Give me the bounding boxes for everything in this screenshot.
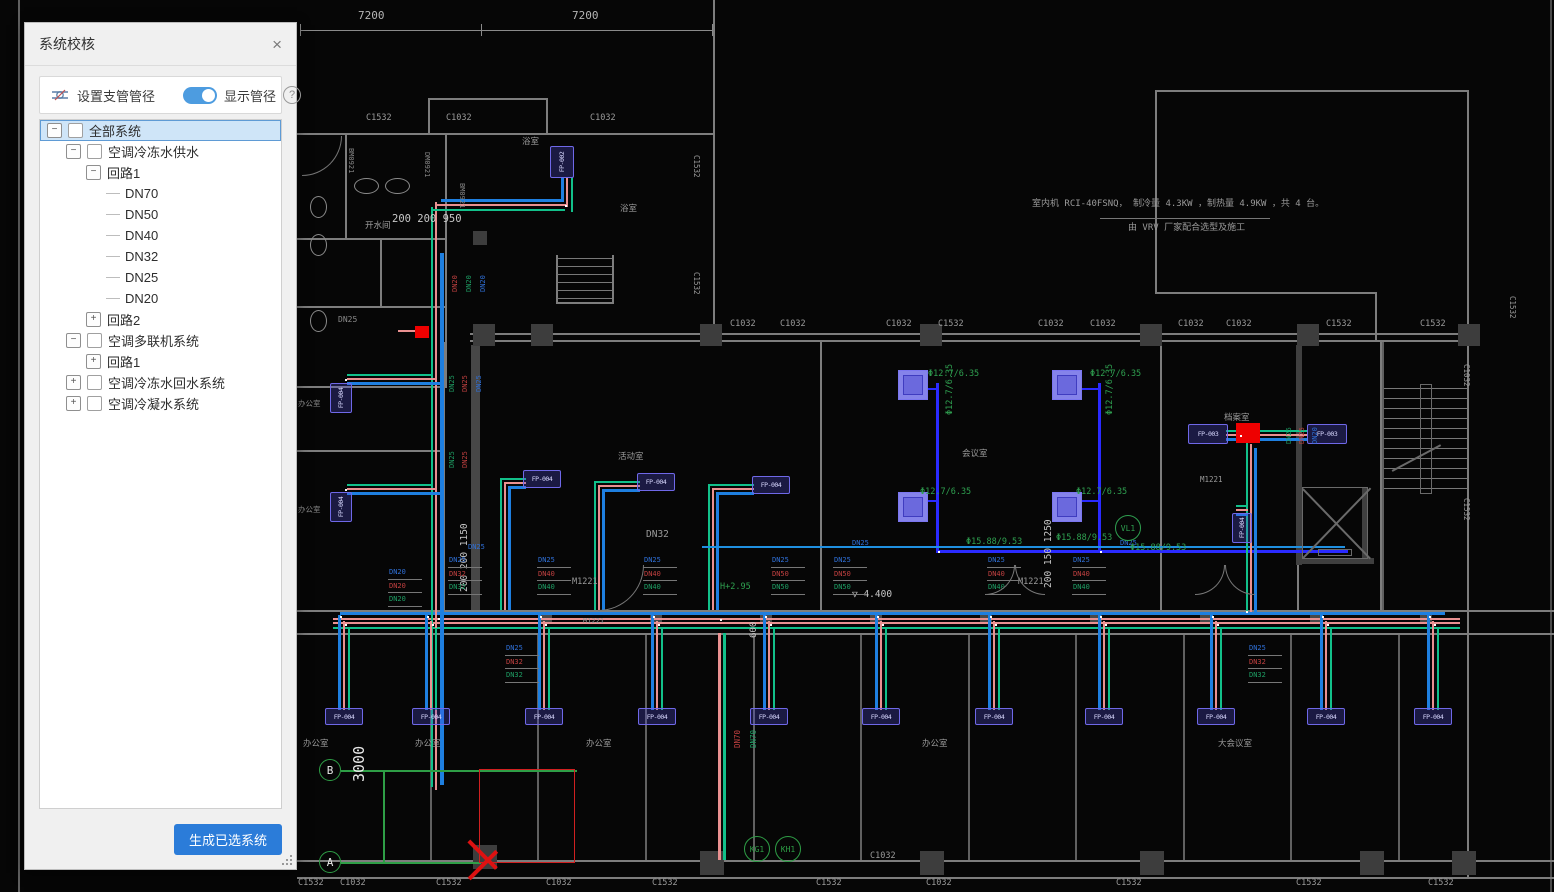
stair-tread	[557, 258, 612, 259]
fan-coil-label: FP-003	[1198, 430, 1218, 438]
wall-line	[428, 98, 430, 135]
wall-line	[1075, 635, 1077, 860]
fan-coil-unit[interactable]: FP-004	[330, 492, 352, 522]
pipe-segment[interactable]	[430, 621, 432, 710]
dn-label: DN40	[643, 581, 677, 595]
pipe-segment[interactable]	[566, 177, 568, 207]
column	[1360, 851, 1384, 875]
wall-line	[713, 0, 715, 341]
fan-coil-unit[interactable]: FP-004	[638, 708, 676, 725]
cad-label: 600	[750, 622, 759, 638]
fan-coil-unit[interactable]: FP-004	[637, 473, 675, 491]
wall-line	[556, 255, 558, 303]
junction-dot	[1322, 616, 1324, 618]
column	[1140, 851, 1164, 875]
tree-item-回路2[interactable]: +回路2	[40, 309, 281, 330]
tree-item-空调冷凝水系统[interactable]: +空调冷凝水系统	[40, 393, 281, 414]
pipe-segment[interactable]	[602, 489, 640, 492]
tree-item-回路1[interactable]: −回路1	[40, 162, 281, 183]
fan-coil-label: FP-004	[759, 713, 779, 721]
pipe-segment[interactable]	[347, 484, 433, 486]
dn-label: DN32	[448, 581, 482, 595]
wall-line	[1290, 635, 1292, 860]
cad-label: C1032	[1178, 320, 1204, 329]
tree-item-空调冷冻水回水系统[interactable]: +空调冷冻水回水系统	[40, 372, 281, 393]
tree-item-label: 回路2	[107, 310, 140, 329]
fan-coil-label: FP-004	[647, 713, 667, 721]
pipe-segment[interactable]	[1427, 615, 1430, 710]
junction-dot	[765, 616, 767, 618]
tree-item-label: 空调多联机系统	[108, 331, 199, 350]
pipe-segment[interactable]	[988, 615, 991, 710]
junction-dot	[427, 616, 429, 618]
fan-coil-label: FP-002	[558, 152, 566, 172]
expand-icon[interactable]: +	[66, 375, 81, 390]
pipe-segment[interactable]	[1432, 621, 1434, 710]
fan-coil-unit[interactable]: FP-004	[1085, 708, 1123, 725]
fan-coil-unit[interactable]: FP-004	[330, 383, 352, 413]
wall-line	[445, 133, 447, 388]
pipe-segment[interactable]	[773, 628, 775, 710]
pipe-segment[interactable]	[500, 478, 502, 610]
dn-label: DN50	[833, 568, 867, 582]
pipe-segment[interactable]	[1082, 500, 1100, 502]
cad-label: C1032	[446, 114, 472, 123]
fan-coil-label: FP-004	[984, 713, 1004, 721]
door-arc	[1195, 565, 1225, 595]
pipe-segment[interactable]	[763, 615, 766, 710]
junction-dot	[1240, 435, 1242, 437]
dn-label: DN25	[1248, 642, 1282, 656]
cad-label: 办公室	[298, 506, 321, 514]
pipe-segment[interactable]	[936, 383, 939, 553]
wall-line	[820, 342, 822, 610]
pipe-segment[interactable]	[718, 633, 721, 860]
pipe-segment[interactable]	[398, 330, 416, 332]
dn-label: DN40	[537, 581, 571, 595]
pipe-segment[interactable]	[435, 628, 437, 710]
tree-item-label: 空调冷凝水系统	[108, 394, 199, 413]
fan-coil-unit[interactable]: FP-002	[550, 146, 574, 178]
fan-coil-label: FP-004	[334, 713, 354, 721]
column	[1452, 851, 1476, 875]
wall-line	[546, 98, 548, 135]
fan-coil-label: FP-004	[1238, 518, 1246, 538]
pipe-segment[interactable]	[712, 488, 754, 490]
fan-coil-unit[interactable]: FP-004	[752, 476, 790, 494]
door-arc	[1225, 565, 1255, 595]
pipe-segment[interactable]	[993, 621, 995, 710]
dn-label: DN25	[1072, 554, 1106, 568]
pipe-segment[interactable]	[383, 772, 385, 864]
dn-label: DN25	[448, 554, 482, 568]
system-check-panel[interactable]: 系统校核 × 设置支管管径 显示管径 ? −全部系统−空调冷冻水供水−回路1DN…	[24, 22, 297, 870]
generate-selected-systems-button[interactable]: 生成已选系统	[174, 824, 282, 855]
pipe-segment[interactable]	[723, 633, 726, 860]
expand-icon[interactable]: +	[86, 354, 101, 369]
fan-coil-unit[interactable]: FP-004	[525, 708, 563, 725]
wall-line	[18, 0, 20, 892]
stair-tread	[557, 274, 612, 275]
fan-coil-unit[interactable]: FP-004	[1307, 708, 1345, 725]
tree-item-DN20[interactable]: DN20	[40, 288, 281, 309]
cassette-unit[interactable]	[1052, 370, 1082, 400]
fan-coil-unit[interactable]: FP-004	[975, 708, 1013, 725]
grid-bubble: B	[319, 759, 341, 781]
pipe-segment[interactable]	[425, 615, 428, 710]
collapse-icon[interactable]: −	[47, 123, 62, 138]
tree-item-DN50[interactable]: DN50	[40, 204, 281, 225]
tree-item-label: 回路1	[107, 352, 140, 371]
wall-line	[1467, 340, 1469, 877]
dn-label: DN25	[505, 642, 539, 656]
pipe-segment[interactable]	[341, 862, 481, 864]
stair-tread	[557, 282, 612, 283]
checkbox[interactable]	[87, 375, 102, 390]
panel-footer: 生成已选系统	[25, 817, 296, 869]
junction-dot	[877, 616, 879, 618]
cad-label: Φ15.88/9.53	[1056, 534, 1112, 543]
dn-label-stack: DN20DN20DN20	[388, 566, 422, 607]
fan-coil-label: FP-003	[1317, 430, 1337, 438]
pipe-segment[interactable]	[571, 177, 573, 212]
tree-item-DN40[interactable]: DN40	[40, 225, 281, 246]
cad-label: DM0921	[423, 152, 430, 177]
cad-label: C1532	[652, 879, 678, 888]
cad-label: 3000	[352, 746, 367, 782]
pipe-segment[interactable]	[347, 488, 436, 490]
pipe-segment[interactable]	[768, 621, 770, 710]
cad-label: DN25	[852, 540, 869, 547]
fan-coil-unit[interactable]: FP-004	[750, 708, 788, 725]
tag-circle: KG1	[744, 836, 770, 862]
pipe-segment[interactable]	[437, 204, 567, 206]
dn-label: DN20	[388, 593, 422, 607]
cad-label: Φ15.88/9.53	[1130, 544, 1186, 553]
pipe-segment[interactable]	[1325, 621, 1327, 710]
junction-dot	[995, 624, 997, 626]
pipe-segment[interactable]	[343, 621, 345, 710]
pipe-segment[interactable]	[998, 628, 1000, 710]
pipe-segment[interactable]	[548, 628, 550, 710]
pipe-segment[interactable]	[333, 627, 1460, 629]
tree-item-DN25[interactable]: DN25	[40, 267, 281, 288]
cad-label: H+2.95	[720, 583, 751, 592]
dn-label: DN20	[388, 566, 422, 580]
tree-item-label: DN20	[125, 291, 158, 306]
pipe-segment[interactable]	[347, 382, 441, 385]
checkbox[interactable]	[68, 123, 83, 138]
junction-dot	[340, 616, 342, 618]
junction-dot	[345, 624, 347, 626]
cad-label: C1032	[886, 320, 912, 329]
dn-label: DN25	[833, 554, 867, 568]
dn-label: DN25	[643, 554, 677, 568]
pipe-segment[interactable]	[333, 622, 1460, 624]
wall-line	[300, 30, 713, 31]
pipe-segment[interactable]	[1098, 615, 1101, 710]
cad-label: C1532	[1296, 879, 1322, 888]
cad-label: 办公室	[415, 740, 441, 749]
tree-line	[106, 193, 120, 194]
tree-line	[106, 214, 120, 215]
pipe-segment[interactable]	[338, 615, 341, 710]
cad-label: 档案室	[1224, 414, 1250, 423]
tree-item-空调冷冻水供水[interactable]: −空调冷冻水供水	[40, 141, 281, 162]
pipe-segment[interactable]	[347, 374, 433, 376]
pipe-segment[interactable]	[928, 500, 938, 502]
dn-label: DN40	[1072, 568, 1106, 582]
checkbox[interactable]	[87, 333, 102, 348]
pipe-segment[interactable]	[333, 618, 1460, 620]
wall-line	[470, 333, 1469, 335]
pipe-segment[interactable]	[598, 485, 640, 487]
pipe-segment[interactable]	[708, 484, 754, 486]
cad-label: 会议室	[962, 450, 988, 459]
dn-label-stack: DN25DN32DN32	[448, 554, 482, 595]
pipe-segment[interactable]	[1236, 505, 1248, 507]
cad-label: 开水间	[365, 222, 391, 231]
column	[1458, 324, 1480, 346]
fan-coil-label: FP-004	[337, 497, 345, 517]
dn-label: DN50	[771, 568, 805, 582]
dn-label: DN25	[537, 554, 571, 568]
selected-element[interactable]	[415, 326, 429, 338]
resize-grip[interactable]	[290, 863, 292, 865]
fan-coil-label: FP-004	[1316, 713, 1336, 721]
cad-label: C1532	[1509, 296, 1517, 319]
tree-item-label: 全部系统	[89, 121, 141, 140]
pipe-segment[interactable]	[433, 209, 565, 211]
cad-label: 室内机 RCI-40FSNQ， 制冷量 4.3KW ，制热量 4.9KW ，共 …	[1032, 200, 1324, 209]
pipe-segment[interactable]	[1210, 615, 1213, 710]
wall-line	[1183, 635, 1185, 860]
pipe-segment[interactable]	[543, 621, 545, 710]
dn-label: DN32	[505, 656, 539, 670]
tree-item-label: 空调冷冻水供水	[108, 142, 199, 161]
dn-label: DN32	[505, 669, 539, 683]
pipe-segment[interactable]	[716, 492, 754, 495]
pipe-diameter-icon	[50, 87, 70, 103]
pipe-segment[interactable]	[651, 615, 654, 710]
tree-item-DN32[interactable]: DN32	[40, 246, 281, 267]
fan-coil-label: FP-004	[646, 478, 666, 486]
cad-label: C1032	[730, 320, 756, 329]
dn-label: DN25	[771, 554, 805, 568]
checkbox[interactable]	[87, 144, 102, 159]
wall-line	[1382, 342, 1384, 610]
pipe-segment[interactable]	[1330, 628, 1332, 710]
collapse-icon[interactable]: −	[66, 333, 81, 348]
close-icon[interactable]: ×	[272, 36, 282, 53]
dn-label-stack: DN25DN40DN40	[643, 554, 677, 595]
fan-coil-label: FP-004	[532, 475, 552, 483]
cad-label: BM0921	[347, 148, 354, 173]
system-tree[interactable]: −全部系统−空调冷冻水供水−回路1DN70DN50DN40DN32DN25DN2…	[39, 119, 282, 809]
cad-label: DN20	[480, 275, 487, 292]
cad-label: Φ12.7/6.35	[1076, 488, 1127, 497]
junction-dot	[345, 489, 347, 491]
tree-item-label: DN25	[125, 270, 158, 285]
collapse-icon[interactable]: −	[66, 144, 81, 159]
expand-icon[interactable]: +	[66, 396, 81, 411]
pipe-segment[interactable]	[435, 202, 437, 635]
pipe-segment[interactable]	[1320, 615, 1323, 710]
cad-label: C1532	[366, 114, 392, 123]
pipe-segment[interactable]	[716, 492, 719, 610]
pipe-segment[interactable]	[875, 615, 878, 710]
cassette-unit[interactable]	[898, 370, 928, 400]
junction-dot	[565, 205, 567, 207]
tree-item-回路1[interactable]: +回路1	[40, 351, 281, 372]
cad-label: 大会议室	[1218, 740, 1252, 749]
pipe-segment[interactable]	[1098, 383, 1101, 553]
pipe-segment[interactable]	[1108, 628, 1110, 710]
cad-label: Φ12.7/6.35	[1106, 364, 1115, 415]
junction-dot	[1327, 624, 1329, 626]
checkbox[interactable]	[87, 396, 102, 411]
dn-label-stack: DN25DN40DN40	[537, 554, 571, 595]
tree-item-label: DN50	[125, 207, 158, 222]
pipe-segment[interactable]	[561, 177, 564, 202]
tree-item-空调多联机系统[interactable]: −空调多联机系统	[40, 330, 281, 351]
cad-label: 办公室	[586, 740, 612, 749]
pipe-segment[interactable]	[928, 388, 938, 390]
junction-dot	[938, 551, 940, 553]
wall-line	[1155, 292, 1377, 294]
junction-dot	[345, 379, 347, 381]
fan-coil-unit[interactable]: FP-003	[1188, 424, 1228, 444]
plumbing-fixture	[310, 196, 327, 218]
pipe-segment[interactable]	[880, 621, 882, 710]
dn-label: DN50	[771, 581, 805, 595]
wall-line	[1155, 90, 1469, 92]
pipe-segment[interactable]	[1215, 621, 1217, 710]
pipe-segment[interactable]	[347, 378, 436, 380]
pipe-segment[interactable]	[340, 612, 1445, 615]
pipe-segment[interactable]	[504, 482, 506, 610]
show-diameter-toggle[interactable]	[183, 87, 217, 104]
cad-label: C1532	[1326, 320, 1352, 329]
wall-line	[1160, 342, 1162, 610]
wall-line	[297, 450, 445, 452]
junction-dot	[1246, 611, 1248, 613]
fan-coil-unit[interactable]: FP-004	[412, 708, 450, 725]
junction-dot	[432, 624, 434, 626]
pipe-segment[interactable]	[1236, 509, 1248, 511]
pipe-segment[interactable]	[702, 546, 1345, 548]
pipe-segment[interactable]	[440, 253, 444, 635]
set-branch-diameter-button[interactable]: 设置支管管径	[77, 86, 155, 105]
plumbing-fixture	[354, 178, 379, 194]
pipe-segment[interactable]	[1220, 628, 1222, 710]
wall-line	[380, 238, 382, 308]
tag-circle: KH1	[775, 836, 801, 862]
dn-label: DN32	[1248, 656, 1282, 670]
cad-label: 浴室	[522, 138, 539, 147]
selected-element[interactable]	[1236, 423, 1260, 443]
junction-dot	[990, 616, 992, 618]
cad-label: C1032	[780, 320, 806, 329]
cad-label: C1532	[298, 879, 324, 888]
pipe-segment[interactable]	[594, 481, 640, 483]
tree-item-DN70[interactable]: DN70	[40, 183, 281, 204]
pipe-segment[interactable]	[508, 486, 511, 610]
tree-item-全部系统[interactable]: −全部系统	[40, 120, 281, 141]
pipe-segment[interactable]	[656, 621, 658, 710]
wall-line	[712, 24, 713, 36]
cad-label: C1532	[1463, 498, 1471, 521]
tree-line	[106, 277, 120, 278]
column	[531, 324, 553, 346]
wall-line	[612, 255, 614, 303]
fan-coil-unit[interactable]: FP-004	[523, 470, 561, 488]
collapse-icon[interactable]: −	[86, 165, 101, 180]
cad-label: C1532	[1428, 879, 1454, 888]
cad-label: DN25	[462, 375, 469, 392]
wall-line	[860, 635, 862, 860]
fan-coil-label: FP-004	[761, 481, 781, 489]
tree-item-label: DN32	[125, 249, 158, 264]
pipe-segment[interactable]	[594, 481, 596, 610]
junction-dot	[658, 624, 660, 626]
dn-label-stack: DN25DN32DN32	[1248, 642, 1282, 683]
junction-dot	[1100, 551, 1102, 553]
column	[1140, 324, 1162, 346]
cad-label: C1532	[1116, 879, 1142, 888]
pipe-segment[interactable]	[348, 628, 350, 710]
junction-dot	[1429, 616, 1431, 618]
shaft-frame	[1420, 384, 1432, 494]
cad-label: C1532	[938, 320, 964, 329]
pipe-segment[interactable]	[347, 492, 441, 495]
help-icon[interactable]: ?	[283, 86, 301, 104]
tree-line	[106, 235, 120, 236]
fan-coil-unit[interactable]: FP-004	[1232, 513, 1252, 543]
fan-coil-unit[interactable]: FP-004	[325, 708, 363, 725]
pipe-segment[interactable]	[1082, 388, 1100, 390]
show-diameter-label: 显示管径	[224, 86, 276, 105]
cad-label: DN25	[449, 375, 456, 392]
expand-icon[interactable]: +	[86, 312, 101, 327]
cad-label: C1032	[590, 114, 616, 123]
app-window: FP-004FP-004FP-004FP-004FP-004FP-004FP-0…	[0, 0, 1554, 892]
pipe-segment[interactable]	[1103, 621, 1105, 710]
cad-label: C1032	[1226, 320, 1252, 329]
fan-coil-label: FP-004	[534, 713, 554, 721]
fan-coil-unit[interactable]: FP-004	[1197, 708, 1235, 725]
wall-line	[1100, 218, 1270, 219]
wall-line	[470, 340, 1469, 342]
cad-label: DN20	[452, 275, 459, 292]
pipe-segment[interactable]	[885, 628, 887, 710]
pipe-segment[interactable]	[661, 628, 663, 710]
cad-label: 浴室	[620, 205, 637, 214]
junction-dot	[882, 624, 884, 626]
cad-label: DN25	[1286, 427, 1293, 444]
junction-dot	[545, 624, 547, 626]
fan-coil-unit[interactable]: FP-004	[862, 708, 900, 725]
pipe-segment[interactable]	[712, 488, 714, 610]
dn-label: DN32	[1248, 669, 1282, 683]
cad-label: DN25	[462, 451, 469, 468]
pipe-segment[interactable]	[431, 207, 433, 635]
fan-coil-unit[interactable]: FP-004	[1414, 708, 1452, 725]
pipe-segment[interactable]	[1437, 628, 1439, 710]
wall-line	[645, 635, 647, 860]
door-arc	[302, 136, 342, 176]
cad-label: 由 VRV 厂家配合选型及施工	[1128, 224, 1245, 233]
